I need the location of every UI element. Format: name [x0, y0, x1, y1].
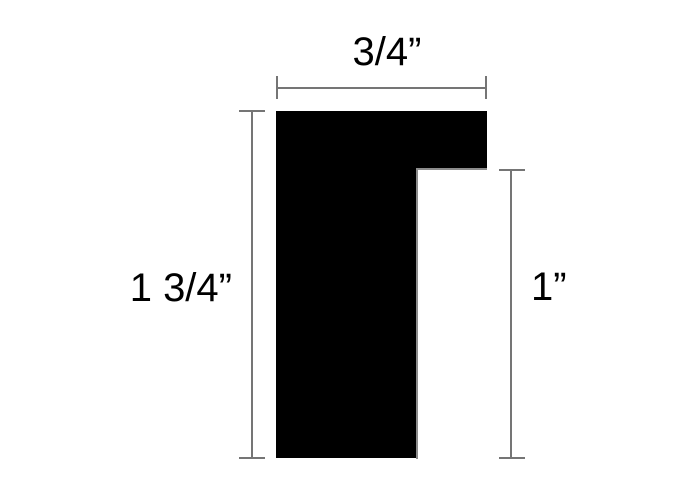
- notch-vertical-edge-line: [416, 168, 418, 459]
- dimension-tick-right-top: [499, 169, 525, 171]
- dimension-line-left: [251, 111, 253, 458]
- dimension-tick-top-right: [485, 76, 487, 99]
- notch-horizontal-edge-line: [416, 168, 487, 170]
- dimension-line-top: [276, 87, 487, 89]
- dimension-tick-left-top: [239, 110, 265, 112]
- profile-leg: [276, 111, 416, 458]
- dimension-label-top-width: 3/4”: [312, 32, 462, 72]
- moulding-profile-diagram: 3/4” 1 3/4” 1”: [0, 0, 700, 500]
- dimension-label-left-height: 1 3/4”: [82, 268, 232, 308]
- dimension-tick-top-left: [276, 76, 278, 99]
- dimension-tick-right-bottom: [499, 457, 525, 459]
- dimension-label-right-height: 1”: [531, 267, 651, 307]
- dimension-tick-left-bottom: [239, 457, 265, 459]
- dimension-line-right: [510, 170, 512, 458]
